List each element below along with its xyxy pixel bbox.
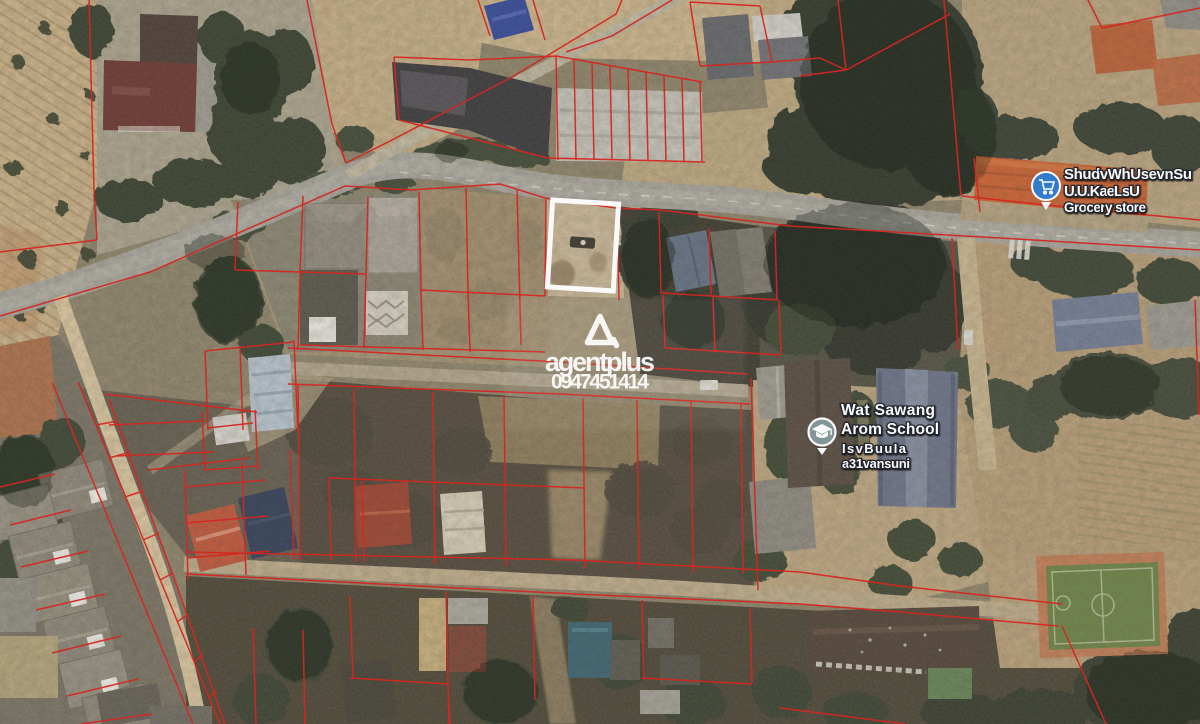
svg-text:Grocery store: Grocery store: [1064, 200, 1146, 215]
svg-text:IsvBuuIa: IsvBuuIa: [842, 441, 907, 456]
svg-text:ShudvWhUsevnSu: ShudvWhUsevnSu: [1064, 166, 1192, 183]
svg-text:Arom School: Arom School: [841, 421, 939, 438]
svg-text:a31vansuni: a31vansuni: [842, 456, 910, 471]
svg-text:0947451414: 0947451414: [551, 371, 649, 394]
svg-text:U.U.KaeLsU: U.U.KaeLsU: [1064, 183, 1140, 200]
svg-text:Wat Sawang: Wat Sawang: [841, 402, 935, 419]
